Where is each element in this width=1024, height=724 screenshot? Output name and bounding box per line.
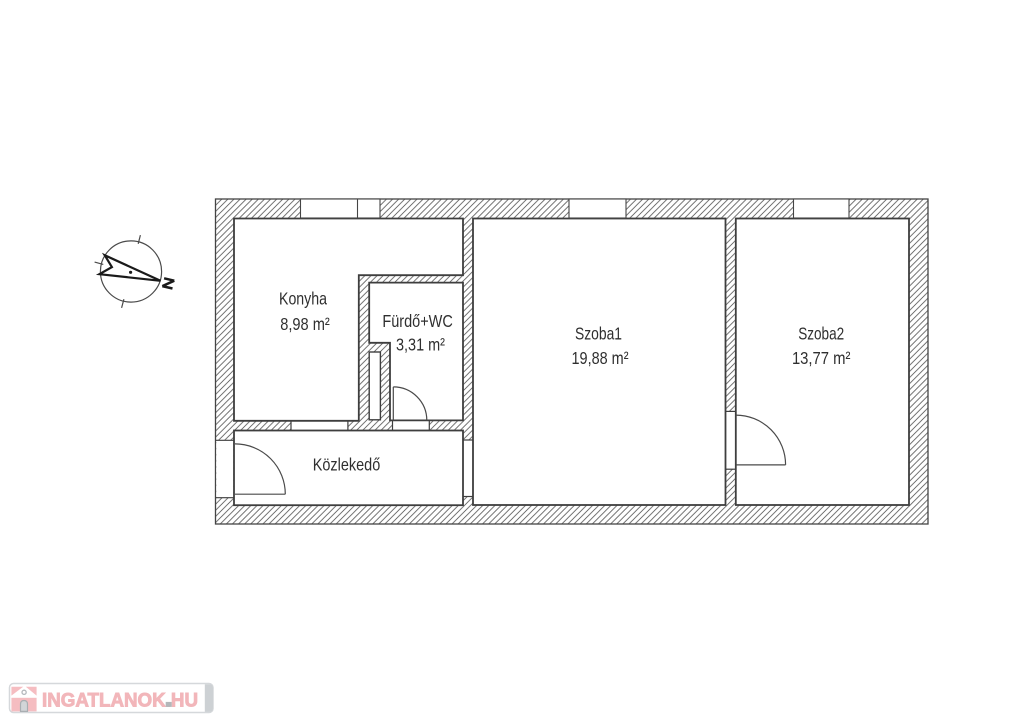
svg-text:Fürdő+WC: Fürdő+WC [382, 311, 453, 331]
svg-text:19,88 m²: 19,88 m² [572, 348, 629, 368]
svg-text:13,77 m²: 13,77 m² [792, 348, 851, 368]
svg-text:3,31 m²: 3,31 m² [396, 335, 445, 355]
svg-text:Közlekedő: Közlekedő [313, 454, 381, 474]
svg-text:Szoba1: Szoba1 [575, 324, 622, 344]
svg-text:8,98 m²: 8,98 m² [280, 314, 330, 334]
svg-text:Konyha: Konyha [279, 289, 327, 309]
svg-text:INGATLANOK.HU: INGATLANOK.HU [42, 689, 198, 711]
svg-text:Szoba2: Szoba2 [798, 324, 844, 344]
